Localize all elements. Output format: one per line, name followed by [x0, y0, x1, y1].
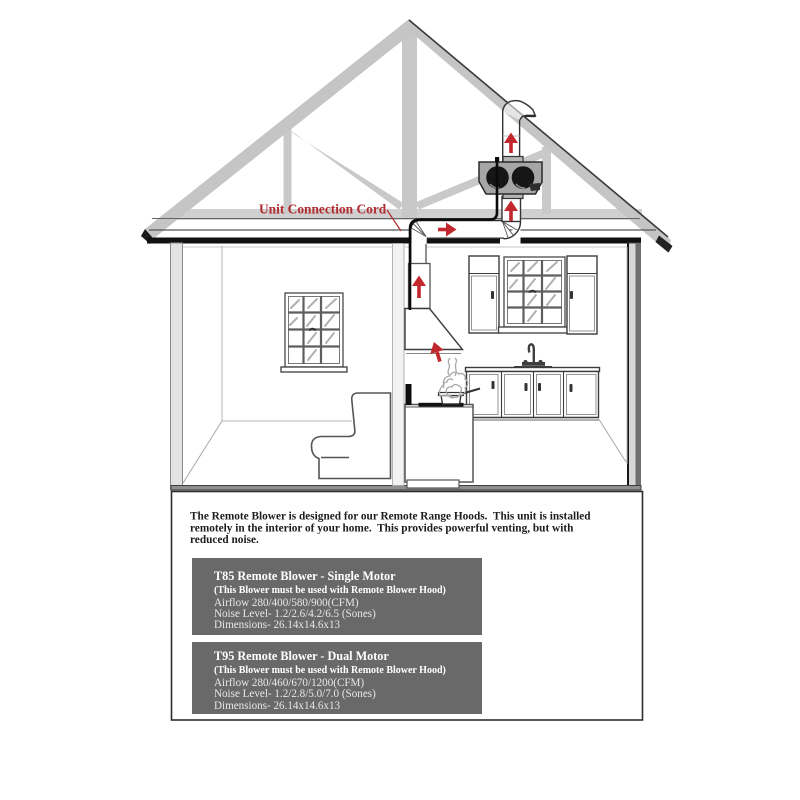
svg-text:T95 Remote Blower - Dual Motor: T95 Remote Blower - Dual Motor	[214, 649, 389, 663]
svg-text:Dimensions- 26.14x14.6x13: Dimensions- 26.14x14.6x13	[214, 619, 340, 631]
svg-text:Unit Connection Cord: Unit Connection Cord	[259, 202, 387, 217]
svg-text:remotely in the interior of yo: remotely in the interior of your home. T…	[190, 522, 574, 534]
svg-text:(This Blower must be used with: (This Blower must be used with Remote Bl…	[214, 665, 446, 676]
svg-text:reduced noise.: reduced noise.	[190, 534, 259, 546]
svg-text:(This Blower must be used with: (This Blower must be used with Remote Bl…	[214, 585, 446, 596]
svg-text:The Remote Blower is designed: The Remote Blower is designed for our Re…	[190, 511, 591, 523]
svg-text:T85 Remote Blower - Single Mot: T85 Remote Blower - Single Motor	[214, 569, 396, 583]
svg-text:Noise Level- 1.2/2.8/5.0/7.0 (: Noise Level- 1.2/2.8/5.0/7.0 (Sones)	[214, 688, 376, 700]
svg-text:Dimensions- 26.14x14.6x13: Dimensions- 26.14x14.6x13	[214, 700, 340, 712]
